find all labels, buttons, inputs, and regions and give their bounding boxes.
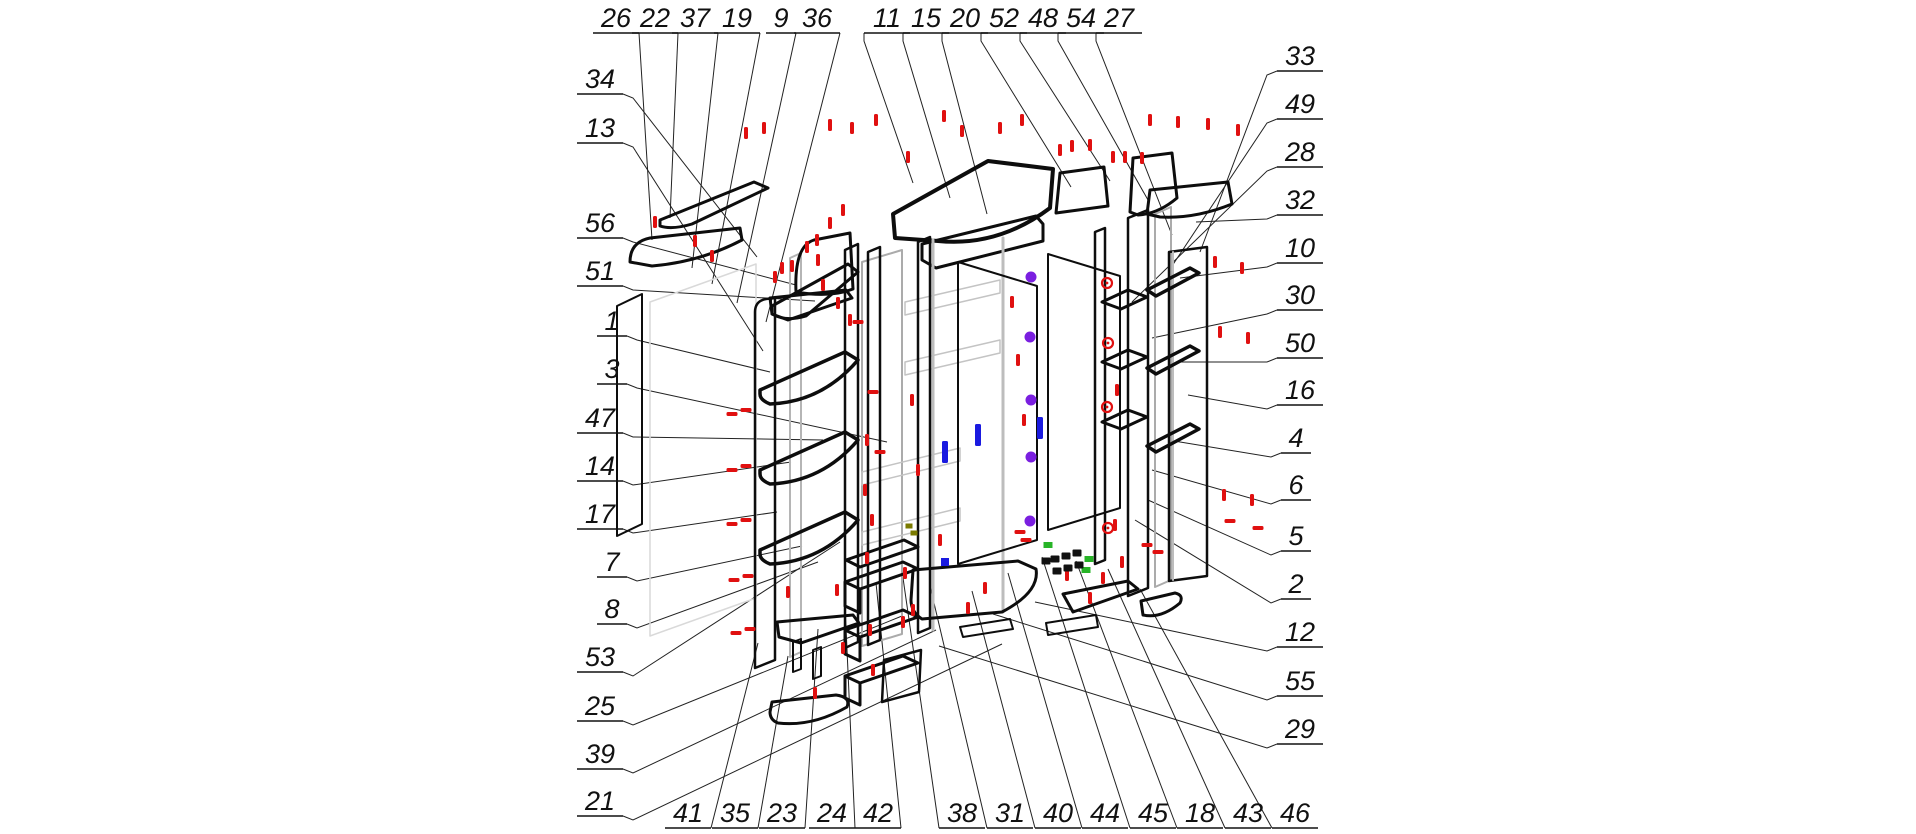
screw-icon [1246,332,1250,344]
callout-number: 47 [585,403,616,433]
leader-line-1 [627,336,770,372]
callout-2: 2 [1281,569,1311,599]
screw-icon [901,616,905,628]
callout-11: 11 [864,3,910,33]
callout-44: 44 [1082,798,1128,828]
screw-icon [1088,139,1092,151]
screw-icon [815,234,819,246]
callout-56: 56 [577,208,623,238]
screw-icon [653,216,657,228]
part-big-top-panel [893,161,1053,242]
screw-icon [906,151,910,163]
callout-number: 49 [1285,89,1315,119]
leader-line-32 [1196,215,1277,222]
callout-number: 45 [1138,798,1169,828]
screw-icon [744,127,748,139]
leader-lines [623,33,1281,828]
dowel-icon [1085,556,1094,562]
handle-icon [942,441,948,463]
screw-icon [848,314,852,326]
callout-number: 38 [947,798,977,828]
leader-line-43 [1108,569,1225,828]
screw-icon [903,567,907,579]
foot-icon [1042,558,1051,565]
callout-26: 26 [593,3,639,33]
bracket-icon [941,558,949,566]
leader-line-11 [864,33,913,183]
callout-number: 21 [584,786,615,816]
callout-38: 38 [939,798,985,828]
callout-30: 30 [1277,280,1323,310]
screw-icon [870,514,874,526]
callout-28: 28 [1277,137,1323,167]
leader-line-36 [766,33,840,322]
callout-41: 41 [665,798,711,828]
foot-icon [1062,553,1071,560]
leader-line-48 [1020,33,1110,181]
callout-number: 56 [585,208,616,238]
part-upper-shelf-b [660,182,768,228]
screw-icon [727,468,738,472]
callout-4: 4 [1281,423,1311,453]
screw-icon [710,250,714,262]
callout-24: 24 [809,798,855,828]
callout-20: 20 [942,3,988,33]
callout-number: 11 [873,3,901,33]
callout-number: 29 [1284,714,1315,744]
callout-12: 12 [1277,617,1323,647]
screw-icon [1250,494,1254,506]
part-upper-shelf-a [630,228,742,266]
leader-line-20 [942,33,987,214]
callout-15: 15 [903,3,949,33]
callout-19: 19 [714,3,760,33]
screw-icon [938,534,942,546]
callout-23: 23 [759,798,805,828]
callout-25: 25 [577,691,623,721]
leader-line-9 [737,33,796,303]
part-plinth-bar [1046,615,1098,635]
handle-icon [1037,417,1043,439]
screw-icon [786,586,790,598]
callout-labels: 2622371993611152052485427334928321030501… [577,3,1323,828]
screw-icon [1225,519,1236,523]
callout-39: 39 [577,739,623,769]
cam-lock-icon [1026,395,1037,406]
screw-icon [1070,140,1074,152]
callout-number: 43 [1233,798,1263,828]
screw-icon [983,582,987,594]
part-back-ghost-panel [650,264,756,636]
screw-icon [875,450,886,454]
callout-54: 54 [1058,3,1104,33]
screw-icon [816,254,820,266]
callout-number: 50 [1285,328,1315,358]
callout-number: 13 [585,113,615,143]
callout-number: 23 [766,798,797,828]
screw-icon [865,434,869,446]
screw-icon [1153,550,1164,554]
leader-line-47 [623,433,823,440]
callout-21: 21 [577,786,623,816]
screw-icon [741,464,752,468]
callout-number: 54 [1066,3,1096,33]
screw-icon [828,119,832,131]
callout-number: 2 [1287,569,1303,599]
callout-3: 3 [597,354,627,384]
part-small-top-panel-1 [1056,167,1108,213]
callout-number: 8 [604,594,619,624]
part-bottom-right-curved [1141,593,1181,616]
part-small-top-panel-2 [1130,153,1177,215]
callout-number: 31 [995,798,1025,828]
screw-icon [874,114,878,126]
screw-icon [1236,124,1240,136]
screw-icon [745,627,756,631]
callout-10: 10 [1277,233,1323,263]
leader-line-46 [1140,589,1272,828]
callout-42: 42 [855,798,901,828]
foot-icon [1064,565,1073,572]
screw-icon [727,522,738,526]
callout-number: 55 [1285,666,1316,696]
screw-icon [836,297,840,309]
callout-36: 36 [794,3,840,33]
callout-number: 37 [680,3,711,33]
screw-icon [741,518,752,522]
screw-icon [871,664,875,676]
callout-46: 46 [1272,798,1318,828]
callout-32: 32 [1277,185,1323,215]
callout-number: 35 [720,798,751,828]
screw-icon [1015,530,1026,534]
peg-icon [911,531,918,536]
callout-number: 15 [911,3,942,33]
callout-number: 53 [585,642,615,672]
screw-icon [865,552,869,564]
callout-50: 50 [1277,328,1323,358]
screw-icon [731,631,742,635]
screw-icon [1016,354,1020,366]
peg-icon [906,524,913,529]
callout-52: 52 [981,3,1027,33]
callout-35: 35 [712,798,758,828]
screw-icon [1120,556,1124,568]
callout-18: 18 [1177,798,1223,828]
leader-line-31 [930,586,987,828]
cam-bolt-icon [1106,406,1109,409]
callout-number: 36 [802,3,833,33]
screw-icon [960,125,964,137]
leader-line-16 [1188,395,1277,409]
screw-icon [693,235,697,247]
cam-bolt-icon [1106,282,1109,285]
callout-number: 22 [639,3,670,33]
screw-icon [910,394,914,406]
screw-icon [1021,538,1032,542]
callout-number: 32 [1285,185,1315,215]
callout-9: 9 [766,3,796,33]
callout-31: 31 [987,798,1033,828]
screw-icon [1176,116,1180,128]
callout-number: 27 [1103,3,1135,33]
screw-icon [1020,114,1024,126]
cam-bolt-icon [1107,527,1110,530]
callout-number: 14 [585,451,615,481]
callout-37: 37 [672,3,718,33]
leader-line-55 [993,614,1277,700]
callout-number: 20 [949,3,980,33]
screw-icon [780,262,784,274]
part-door-panel-2 [1048,254,1120,530]
screw-icon [741,408,752,412]
screw-icon [743,574,754,578]
screw-icon [805,241,809,253]
callout-number: 46 [1280,798,1311,828]
part-bottom-bar [960,619,1013,637]
screw-icon [911,604,915,616]
screw-icon [1240,262,1244,274]
screw-icon [1101,572,1105,584]
callout-number: 48 [1028,3,1058,33]
callout-6: 6 [1281,470,1311,500]
callout-49: 49 [1277,89,1323,119]
cam-bolt-icon [1107,342,1110,345]
screw-icon [1022,414,1026,426]
screw-icon [1218,326,1222,338]
screw-icon [828,217,832,229]
callout-34: 34 [577,64,623,94]
screw-icon [998,122,1002,134]
foot-icon [1051,556,1060,563]
callout-number: 7 [604,547,620,577]
cam-lock-icon [1026,272,1037,283]
callout-22: 22 [632,3,678,33]
screw-icon [1010,296,1014,308]
screw-icon [762,122,766,134]
callout-number: 44 [1090,798,1120,828]
callout-51: 51 [577,256,623,286]
callout-27: 27 [1096,3,1142,33]
screw-icon [1148,114,1152,126]
part-mid-unit-shelf-3 [1102,410,1147,429]
screw-icon [1253,526,1264,530]
dowel-icon [1044,542,1053,548]
leader-line-56 [623,238,796,285]
callout-number: 3 [604,354,619,384]
callout-number: 16 [1285,375,1316,405]
screw-icon [850,122,854,134]
callout-number: 52 [989,3,1019,33]
callout-8: 8 [597,594,627,624]
foot-icon [1075,562,1084,569]
screw-icon [916,464,920,476]
part-mid-unit-shelf-2 [1102,350,1147,369]
callout-number: 10 [1285,233,1315,263]
foot-icon [1073,550,1082,557]
callout-45: 45 [1130,798,1176,828]
screw-icon [1142,543,1153,547]
leader-line-53 [623,542,840,676]
screw-icon [966,602,970,614]
cam-lock-icon [1025,516,1036,527]
leader-line-4 [1168,440,1281,457]
callout-number: 51 [585,256,615,286]
screw-icon [863,484,867,496]
leader-line-19 [712,33,760,284]
callout-number: 26 [600,3,632,33]
callout-number: 5 [1288,521,1304,551]
screw-icon [1123,151,1127,163]
leader-line-22 [670,33,678,218]
exploded-assembly-page: 2622371993611152052485427334928321030501… [0,0,1916,834]
foot-icon [1053,568,1062,575]
callout-number: 12 [1285,617,1315,647]
screw-icon [1058,144,1062,156]
screw-icon [1088,592,1092,604]
callout-number: 6 [1288,470,1304,500]
screw-icon [821,279,825,291]
leader-line-49 [1172,119,1277,266]
callout-number: 40 [1043,798,1073,828]
callout-number: 18 [1185,798,1215,828]
callout-number: 41 [673,798,703,828]
screw-icon [727,412,738,416]
callout-number: 17 [585,499,616,529]
callout-number: 34 [585,64,615,94]
callout-48: 48 [1020,3,1066,33]
callout-number: 25 [584,691,616,721]
assembly-diagram: 2622371993611152052485427334928321030501… [0,0,1916,834]
screw-icon [1213,256,1217,268]
screw-icon [868,390,879,394]
leader-line-40 [972,591,1035,828]
screw-icon [1222,489,1226,501]
part-mid-unit-shelf-1 [1102,290,1147,309]
screw-icon [1115,384,1119,396]
part-bottom-curved-shelf [770,695,848,724]
handle-icon [975,424,981,446]
callout-number: 33 [1285,41,1315,71]
callout-33: 33 [1277,41,1323,71]
callout-13: 13 [577,113,623,143]
callout-number: 1 [604,306,619,336]
callout-number: 39 [585,739,615,769]
callout-number: 9 [773,3,788,33]
callout-number: 42 [863,798,893,828]
callout-number: 30 [1285,280,1315,310]
screw-icon [841,204,845,216]
screw-icon [773,271,777,283]
screw-icon [813,687,817,699]
callout-number: 28 [1284,137,1315,167]
screw-icon [835,584,839,596]
callout-number: 24 [816,798,847,828]
part-side-panel-far-left [617,294,642,536]
callout-5: 5 [1281,521,1311,551]
screw-icon [853,320,864,324]
screw-icon [841,642,845,654]
callout-number: 19 [722,3,752,33]
callout-29: 29 [1277,714,1323,744]
screw-icon [790,260,794,272]
leader-line-50 [1178,358,1277,362]
cam-lock-icon [1025,332,1036,343]
callout-55: 55 [1277,666,1323,696]
callout-1: 1 [597,306,627,336]
callout-16: 16 [1277,375,1323,405]
screw-icon [1206,118,1210,130]
callout-number: 4 [1288,423,1303,453]
screw-icon [729,578,740,582]
cam-lock-icon [1026,452,1037,463]
screw-icon [942,110,946,122]
screw-icon [1111,151,1115,163]
part-right-side-panel [1169,247,1207,581]
screw-icon [868,624,872,636]
part-mid-unit-right-rail [1128,210,1148,596]
leader-line-29 [939,646,1277,748]
callout-53: 53 [577,642,623,672]
callout-7: 7 [597,547,627,577]
screw-icon [1140,152,1144,164]
leader-line-26 [639,33,652,240]
